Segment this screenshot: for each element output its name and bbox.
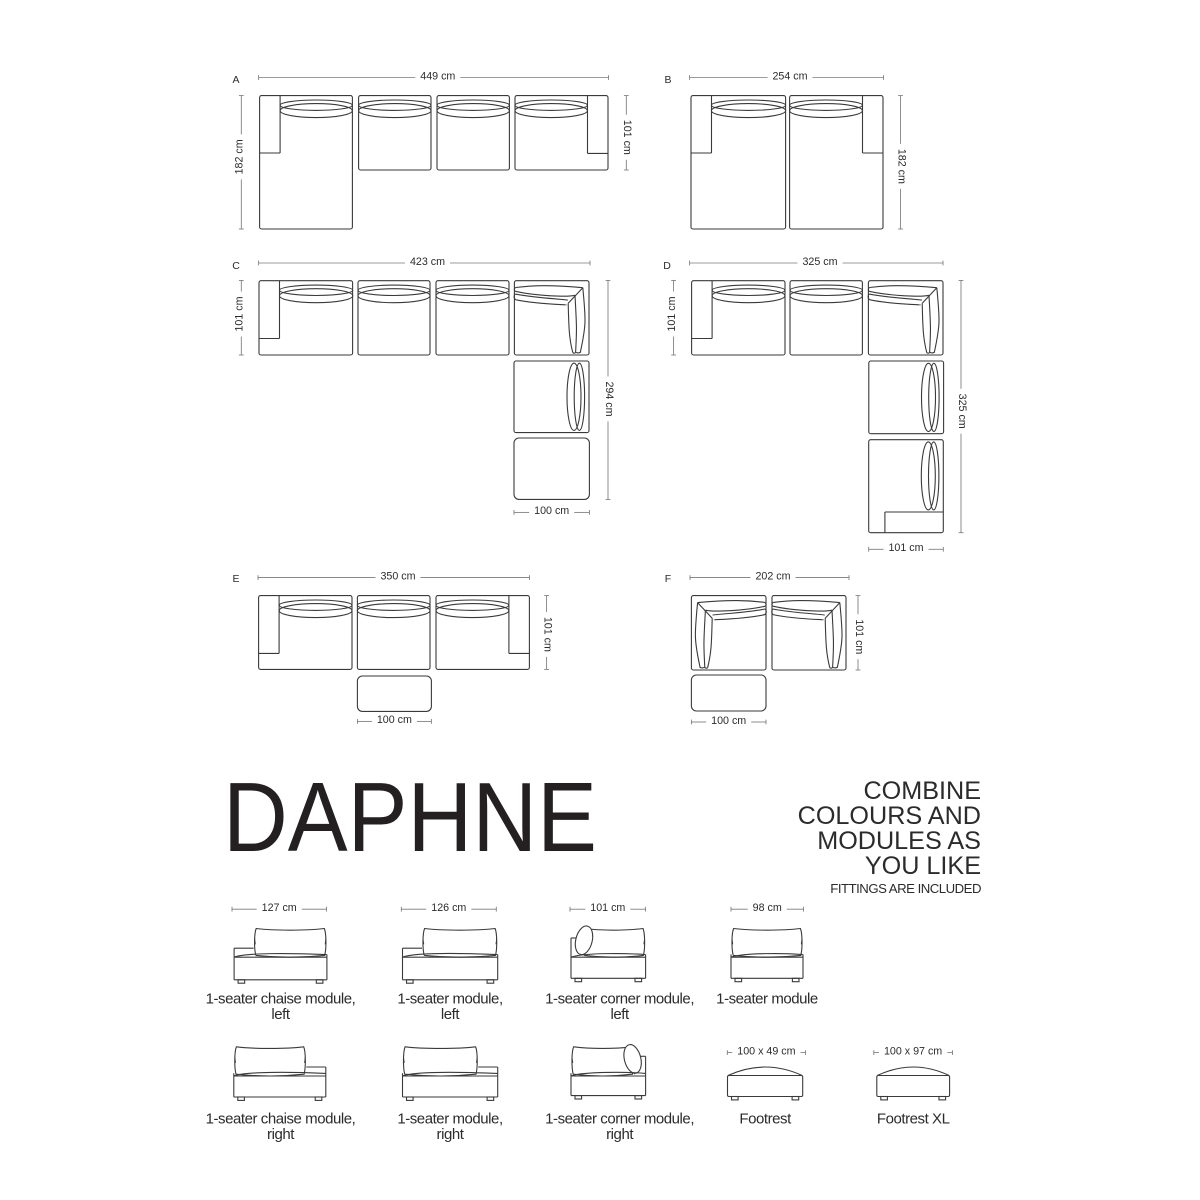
svg-text:325 cm: 325 cm: [956, 394, 968, 429]
svg-text:182 cm: 182 cm: [895, 149, 907, 184]
svg-text:127 cm: 127 cm: [262, 902, 297, 914]
svg-text:1-seater chaise module,: 1-seater chaise module,: [206, 1111, 356, 1128]
svg-text:Footrest XL: Footrest XL: [877, 1111, 950, 1128]
svg-text:100 cm: 100 cm: [711, 715, 746, 727]
svg-text:202 cm: 202 cm: [755, 570, 790, 582]
svg-text:FITTINGS ARE INCLUDED: FITTINGS ARE INCLUDED: [830, 881, 981, 896]
svg-text:101 cm: 101 cm: [666, 296, 678, 331]
svg-text:101 cm: 101 cm: [541, 617, 553, 652]
svg-text:right: right: [437, 1126, 465, 1143]
svg-text:left: left: [441, 1006, 460, 1023]
svg-text:left: left: [610, 1006, 629, 1023]
svg-text:350 cm: 350 cm: [380, 570, 415, 582]
svg-text:1-seater corner module,: 1-seater corner module,: [545, 990, 694, 1007]
svg-text:101 cm: 101 cm: [621, 120, 633, 155]
svg-text:101 cm: 101 cm: [590, 902, 625, 914]
svg-text:449 cm: 449 cm: [420, 70, 455, 82]
svg-text:COMBINE: COMBINE: [863, 777, 981, 805]
svg-text:MODULES AS: MODULES AS: [817, 827, 981, 855]
svg-text:100 cm: 100 cm: [534, 505, 569, 517]
svg-text:1-seater chaise module,: 1-seater chaise module,: [206, 990, 356, 1007]
svg-text:COLOURS AND: COLOURS AND: [798, 802, 981, 830]
svg-text:left: left: [271, 1006, 290, 1023]
svg-text:right: right: [606, 1126, 634, 1143]
svg-text:Footrest: Footrest: [739, 1111, 792, 1128]
svg-text:A: A: [232, 74, 239, 86]
svg-text:1-seater module,: 1-seater module,: [397, 990, 502, 1007]
svg-text:1-seater module: 1-seater module: [716, 990, 818, 1007]
svg-text:DAPHNE: DAPHNE: [223, 762, 597, 872]
svg-text:F: F: [665, 573, 671, 585]
svg-text:126 cm: 126 cm: [431, 902, 466, 914]
svg-text:1-seater module,: 1-seater module,: [397, 1111, 502, 1128]
svg-text:101 cm: 101 cm: [888, 542, 923, 554]
svg-text:182 cm: 182 cm: [234, 139, 246, 174]
svg-text:C: C: [232, 260, 240, 272]
svg-text:right: right: [267, 1126, 295, 1143]
svg-text:YOU LIKE: YOU LIKE: [865, 852, 981, 880]
svg-text:D: D: [663, 260, 671, 272]
svg-text:B: B: [664, 74, 671, 86]
svg-text:98 cm: 98 cm: [753, 902, 782, 914]
svg-text:1-seater corner module,: 1-seater corner module,: [545, 1111, 694, 1128]
svg-text:101 cm: 101 cm: [234, 296, 246, 331]
svg-text:100 x 49 cm: 100 x 49 cm: [737, 1045, 795, 1057]
svg-text:423 cm: 423 cm: [410, 256, 445, 268]
svg-text:E: E: [232, 573, 239, 585]
svg-text:254 cm: 254 cm: [772, 70, 807, 82]
svg-text:100 cm: 100 cm: [377, 714, 412, 726]
svg-text:100 x 97 cm: 100 x 97 cm: [884, 1045, 942, 1057]
svg-text:101 cm: 101 cm: [853, 619, 865, 654]
svg-text:294 cm: 294 cm: [603, 381, 615, 416]
svg-text:325 cm: 325 cm: [802, 256, 837, 268]
